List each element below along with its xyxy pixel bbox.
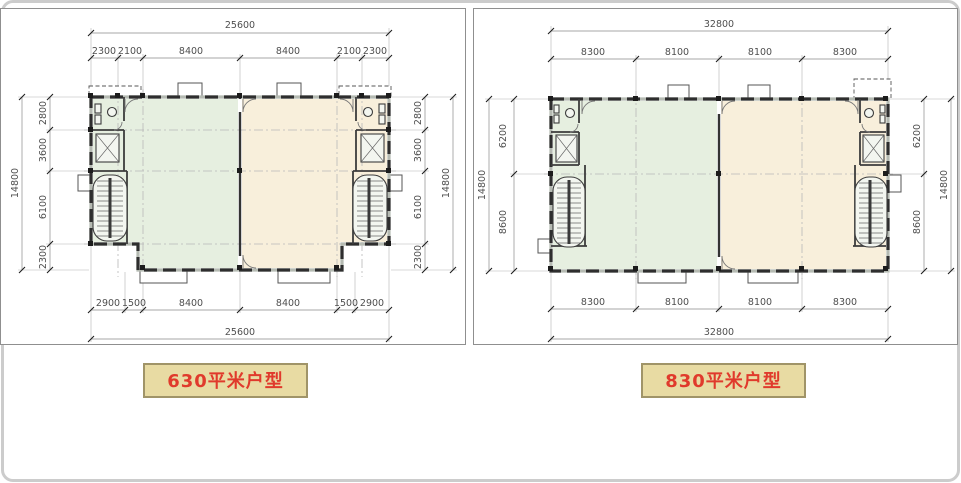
unit-label-830: 830平米户型 [641,363,806,398]
dim-right-seg: 2300 [413,245,424,269]
elevator-right-icon-630 [361,134,384,162]
elevator-right-icon-830 [863,135,884,162]
dim-right-seg: 8600 [912,210,923,234]
dim-bottom-seg: 1500 [334,298,358,309]
floorplan-630-drawing: 25600 2300 2100 8400 8400 2100 2300 2900… [1,9,465,344]
unit-label-830-text: 830平米户型 [665,371,782,392]
elevator-left-icon-630 [96,134,119,162]
dim-top-seg: 2300 [92,46,116,57]
dim-right-total: 14800 [939,170,950,200]
dim-top-seg: 8300 [581,47,605,58]
dim-right-seg: 2800 [413,101,424,125]
dim-top-seg: 2100 [337,46,361,57]
dim-left-seg: 8600 [498,210,509,234]
dim-top-seg: 2300 [363,46,387,57]
dim-right-total: 14800 [441,168,452,198]
dim-top-seg: 8100 [748,47,772,58]
dim-bottom-total: 32800 [704,327,734,338]
stair-left-icon-830 [553,177,585,247]
elevator-left-icon-830 [556,135,577,162]
stair-right-icon-830 [855,177,887,247]
dim-bottom-total: 25600 [225,327,255,338]
dim-top-seg: 8400 [179,46,203,57]
dim-top-seg: 8300 [833,47,857,58]
dim-bottom-seg: 8300 [833,297,857,308]
dim-top-total: 25600 [225,20,255,31]
dim-left-seg: 3600 [38,138,49,162]
dim-left-seg: 6100 [38,195,49,219]
dim-left-total: 14800 [477,170,488,200]
dim-bottom-seg: 1500 [122,298,146,309]
dim-right-seg: 6100 [413,195,424,219]
floorplan-panel-830: 32800 8300 8100 8100 8300 8300 8100 8100… [473,8,958,345]
canopy-topright-630 [339,86,391,97]
unit-label-630: 630平米户型 [143,363,308,398]
dim-left-seg: 2300 [38,245,49,269]
floorplan-panel-630: 25600 2300 2100 8400 8400 2100 2300 2900… [0,8,466,345]
dim-top-total: 32800 [704,19,734,30]
dim-bottom-seg: 8300 [581,297,605,308]
stair-right-icon-630 [353,175,387,241]
dim-top-seg: 2100 [118,46,142,57]
dim-bottom-seg: 2900 [96,298,120,309]
dim-right-seg: 6200 [912,124,923,148]
dim-top-seg: 8100 [665,47,689,58]
dim-bottom-seg: 8100 [748,297,772,308]
dim-bottom-seg: 2900 [360,298,384,309]
dim-bottom-seg: 8400 [276,298,300,309]
canopy-topright-830 [854,79,891,98]
dim-top-seg: 8400 [276,46,300,57]
dim-bottom-seg: 8400 [179,298,203,309]
dim-left-total: 14800 [10,168,21,198]
stair-left-icon-630 [93,175,127,241]
dim-bottom-seg: 8100 [665,297,689,308]
dim-left-seg: 2800 [38,101,49,125]
floorplan-830-drawing: 32800 8300 8100 8100 8300 8300 8100 8100… [474,9,957,344]
dim-left-seg: 6200 [498,124,509,148]
unit-label-630-text: 630平米户型 [167,371,284,392]
dim-right-seg: 3600 [413,138,424,162]
